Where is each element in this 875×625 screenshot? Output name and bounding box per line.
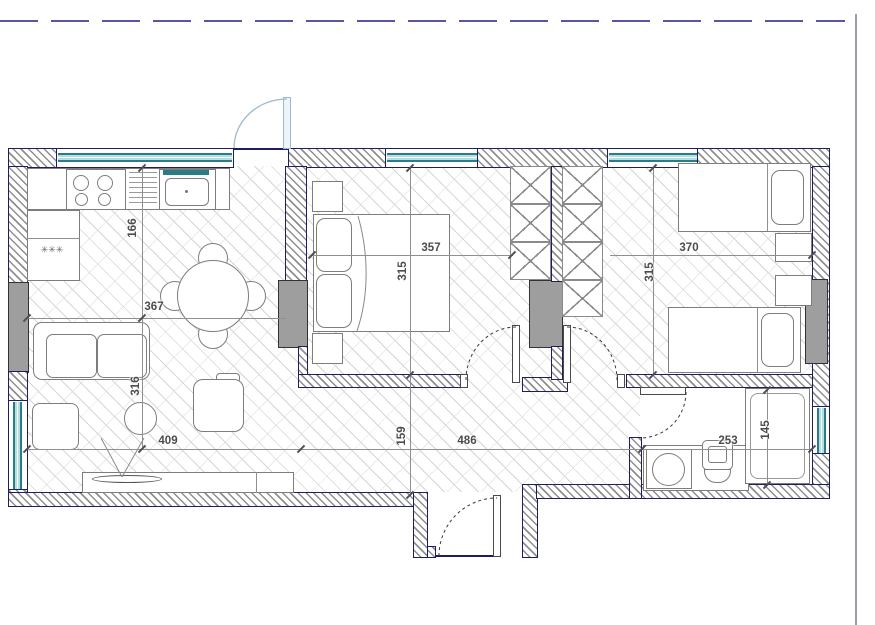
dining-table (177, 260, 249, 332)
freezer-icon: ✳✳✳ (41, 245, 64, 256)
bathroom-door-leaf (640, 387, 686, 395)
wall-left-mid (8, 371, 28, 402)
drainer-icon (129, 172, 157, 207)
dim-hall-depth: 159 (396, 426, 408, 445)
window-glass (387, 153, 477, 162)
washer-drum-icon (652, 453, 685, 486)
wall-living-bedroom (285, 166, 307, 282)
bathtub-inner (750, 393, 805, 479)
window-glass (817, 408, 826, 453)
dim-kids-depth: 315 (644, 262, 656, 281)
window-glass (609, 153, 697, 162)
nightstand (312, 181, 343, 212)
wall-top-b (288, 148, 387, 168)
wall-recess-left (413, 492, 428, 558)
site-boundary-dashed-line (0, 20, 845, 22)
wardrobe-cell (562, 280, 603, 317)
vestibule-threshold (436, 555, 495, 557)
counter-divider (27, 238, 80, 239)
dim-line (410, 168, 411, 495)
dim-bedroom-width: 357 (421, 242, 440, 254)
pillow (761, 313, 794, 367)
bed-line (757, 308, 758, 372)
tv-icon (92, 475, 162, 483)
wardrobe-cell (510, 166, 551, 204)
wall-left-upper (8, 166, 28, 284)
stove (66, 169, 126, 210)
floor-plan: ✳✳✳ (0, 0, 875, 625)
entry-threshold (234, 148, 288, 150)
column-living-bedroom (278, 280, 308, 348)
burner-icon (73, 175, 89, 191)
entry-door-arc (234, 99, 287, 148)
wall-recess-sill (427, 546, 436, 558)
window-living-room (8, 400, 28, 491)
kids-door-jamb (617, 374, 625, 388)
wardrobe-cell (510, 242, 551, 280)
dim-line (27, 449, 813, 450)
bed-line (767, 164, 768, 231)
armchair (32, 403, 79, 450)
vestibule-floor (427, 492, 523, 546)
dim-living-width: 409 (158, 435, 177, 447)
vestibule-door-leaf (493, 495, 501, 557)
pillow (316, 274, 352, 328)
dim-line (142, 168, 143, 449)
burner-icon (97, 175, 113, 191)
dim-line (27, 318, 286, 319)
nightstand (312, 333, 343, 364)
column-shaft (529, 280, 563, 348)
dim-kids-width: 370 (679, 242, 698, 254)
site-boundary-vertical-line (855, 14, 857, 625)
pillow (316, 218, 352, 272)
wall-top-left-corner (8, 148, 58, 168)
burner-icon (98, 193, 111, 206)
dim-living-depth: 316 (130, 376, 142, 395)
wardrobe-cell (510, 204, 551, 242)
wall-kids-bottom (626, 374, 813, 388)
column-left (8, 282, 29, 373)
entry-door-leaf (283, 97, 291, 149)
drain-icon (185, 190, 188, 193)
dim-kitchen-width: 367 (144, 301, 163, 313)
wall-top-d (477, 148, 609, 168)
sofa-cushion (46, 334, 97, 378)
nightstand (775, 275, 812, 306)
wall-bottom-left (8, 492, 428, 507)
wall-bathroom-left (629, 437, 642, 499)
dim-bath-width: 253 (718, 435, 737, 447)
dim-line (610, 255, 813, 256)
wardrobe-cell (562, 242, 603, 280)
dim-line (312, 255, 513, 256)
window-glass (13, 402, 22, 489)
dim-hall-width: 486 (457, 435, 476, 447)
window-glass (58, 153, 232, 162)
burner-icon (75, 193, 88, 206)
sofa-cushion (97, 334, 147, 378)
faucet-icon (163, 170, 209, 175)
desk (193, 379, 244, 432)
dim-bath-depth: 145 (760, 420, 772, 439)
wardrobe-cell (562, 166, 603, 204)
dim-bedroom-depth: 315 (397, 261, 409, 280)
window-bedroom (385, 148, 479, 168)
nightstand (775, 233, 812, 262)
wall-bedroom-bottom (298, 374, 464, 388)
wardrobe-cell (562, 204, 603, 242)
kids-door-leaf (563, 325, 571, 383)
console-divider (256, 472, 257, 493)
bedroom-door-leaf (512, 325, 520, 383)
dim-kitchen-depth: 166 (127, 218, 139, 237)
bedroom-door-jamb (460, 374, 468, 388)
pillow (771, 170, 804, 225)
wall-partition-lower (551, 346, 563, 380)
side-table (124, 402, 157, 435)
